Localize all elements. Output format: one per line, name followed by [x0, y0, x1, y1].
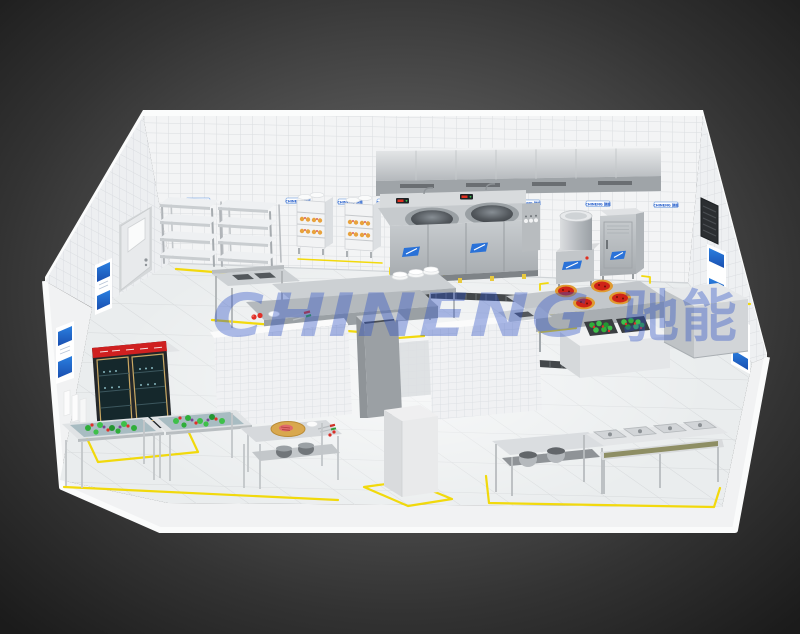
left-wall-poster-1: [95, 258, 112, 315]
tall-fridge-box: [384, 405, 438, 497]
watermark-latin: CHINENG: [212, 281, 592, 351]
wall-vent-grille: [701, 198, 718, 244]
wok-pan-2: [471, 205, 513, 223]
fridge-door-2: [132, 354, 168, 422]
back-wall-cap: [143, 110, 703, 116]
svg-text:CHINENG 驰能: CHINENG 驰能: [653, 202, 679, 207]
watermark: CHINENG 驰能: [212, 281, 739, 351]
kitchen-3d-plan: CHINENG 驰能 CHINENG 驰能 CHINENG 驰能 CHINENG…: [0, 0, 800, 634]
steamer-trolley-1: [297, 192, 333, 255]
door-handle: [144, 258, 147, 261]
steamer-trolley-2: [345, 195, 381, 258]
steam-cabinet: [600, 208, 644, 281]
cabinet-handle: [606, 240, 608, 249]
fridge-door-1: [97, 357, 132, 426]
double-wok-range: [378, 184, 540, 286]
watermark-cn: 驰能: [623, 285, 739, 350]
exhaust-hood: [376, 147, 661, 196]
seasoning-rack: [522, 203, 540, 253]
meat-on-board: [279, 425, 293, 432]
kitchen-render: CHINENG 驰能 CHINENG 驰能 CHINENG 驰能 CHINENG…: [0, 0, 800, 634]
svg-text:CHINENG 驰能: CHINENG 驰能: [585, 201, 611, 206]
left-stub-poster: [56, 321, 74, 384]
